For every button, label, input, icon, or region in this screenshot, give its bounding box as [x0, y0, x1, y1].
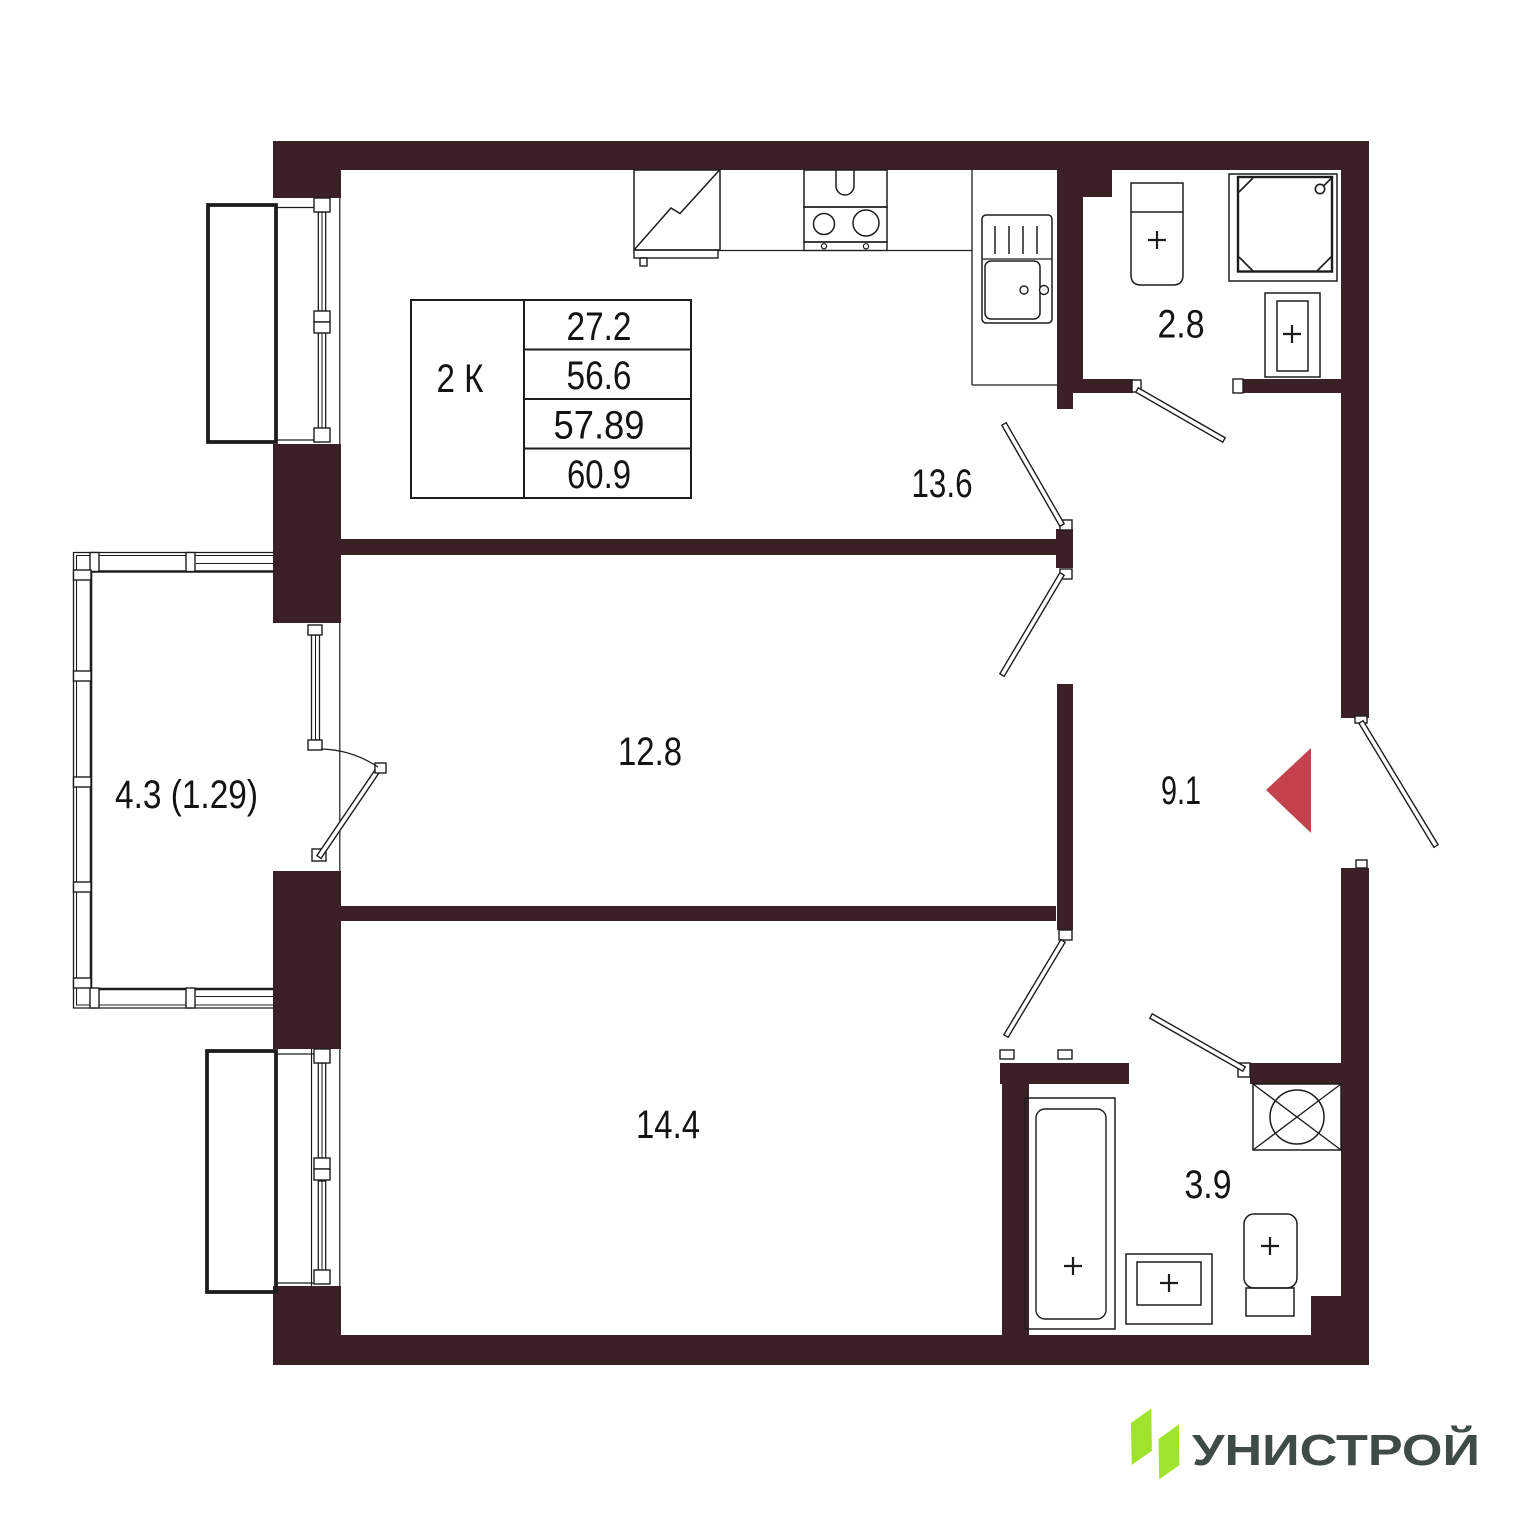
- svg-text:4.3 (1.29): 4.3 (1.29): [115, 773, 258, 817]
- svg-text:2.8: 2.8: [1158, 303, 1205, 347]
- svg-text:12.8: 12.8: [618, 730, 682, 774]
- svg-text:56.6: 56.6: [567, 354, 632, 398]
- svg-text:13.6: 13.6: [912, 462, 973, 506]
- svg-text:14.4: 14.4: [636, 1103, 700, 1147]
- svg-text:УНИСТРОЙ: УНИСТРОЙ: [1192, 1424, 1480, 1475]
- svg-text:60.9: 60.9: [567, 453, 631, 497]
- svg-text:27.2: 27.2: [567, 305, 632, 349]
- svg-text:2 К: 2 К: [437, 357, 485, 401]
- svg-text:3.9: 3.9: [1185, 1163, 1232, 1207]
- svg-text:9.1: 9.1: [1161, 769, 1201, 813]
- svg-text:57.89: 57.89: [554, 404, 645, 448]
